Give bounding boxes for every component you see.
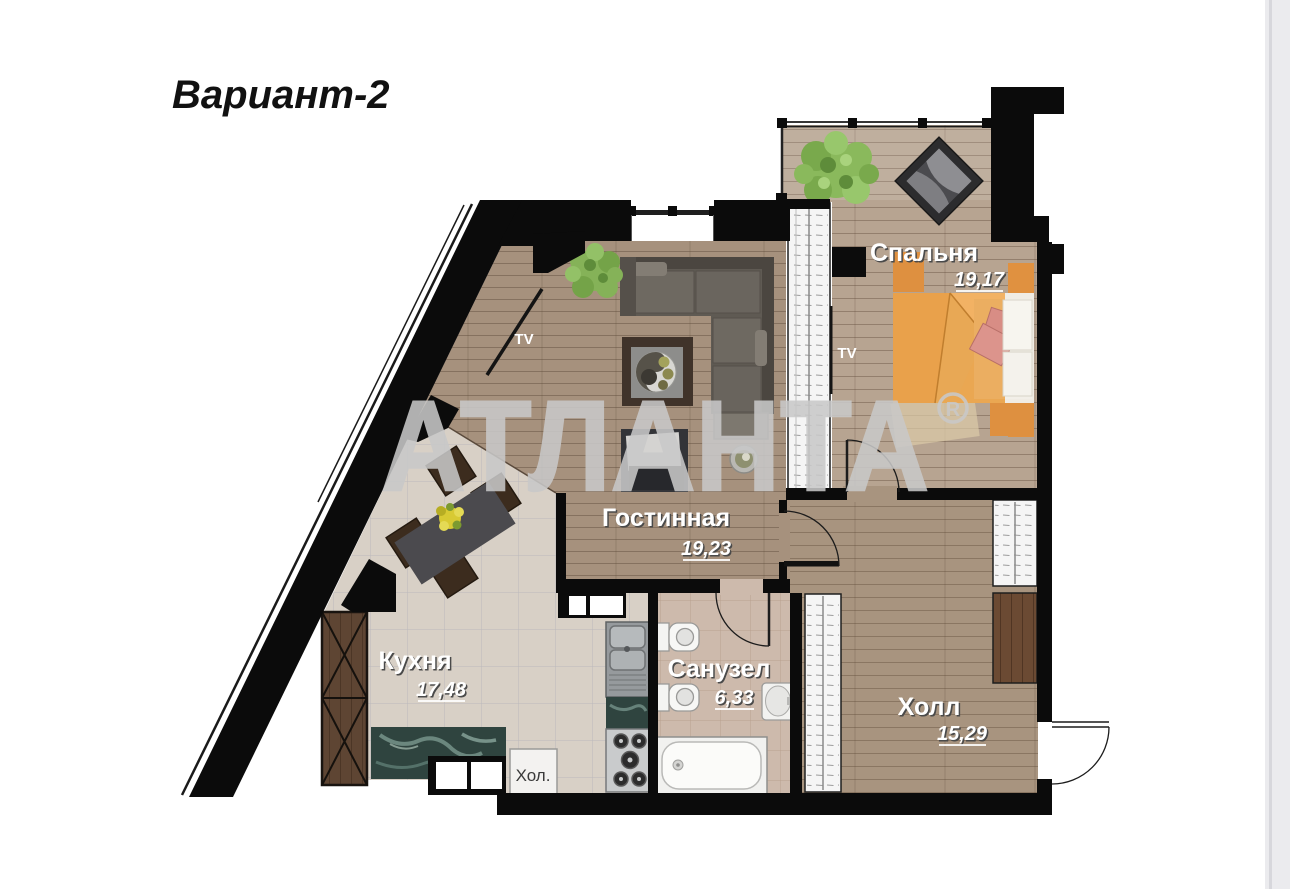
svg-text:Спальня: Спальня xyxy=(870,239,978,267)
svg-text:R: R xyxy=(946,399,961,421)
svg-text:АТЛАНТА: АТЛАНТА xyxy=(381,375,929,518)
svg-text:TV: TV xyxy=(514,331,533,348)
svg-text:6,33: 6,33 xyxy=(715,687,754,709)
svg-text:TV: TV xyxy=(837,345,856,362)
svg-text:Холл: Холл xyxy=(898,693,961,721)
svg-text:Вариант-2: Вариант-2 xyxy=(172,73,390,117)
svg-text:17,48: 17,48 xyxy=(416,679,467,701)
svg-text:19,17: 19,17 xyxy=(954,269,1005,291)
svg-text:Кухня: Кухня xyxy=(378,647,451,675)
svg-text:Гостинная: Гостинная xyxy=(602,504,730,532)
svg-text:19,23: 19,23 xyxy=(681,538,731,560)
svg-text:Санузел: Санузел xyxy=(668,655,771,683)
svg-text:15,29: 15,29 xyxy=(937,723,988,745)
svg-text:Хол.: Хол. xyxy=(516,766,551,785)
